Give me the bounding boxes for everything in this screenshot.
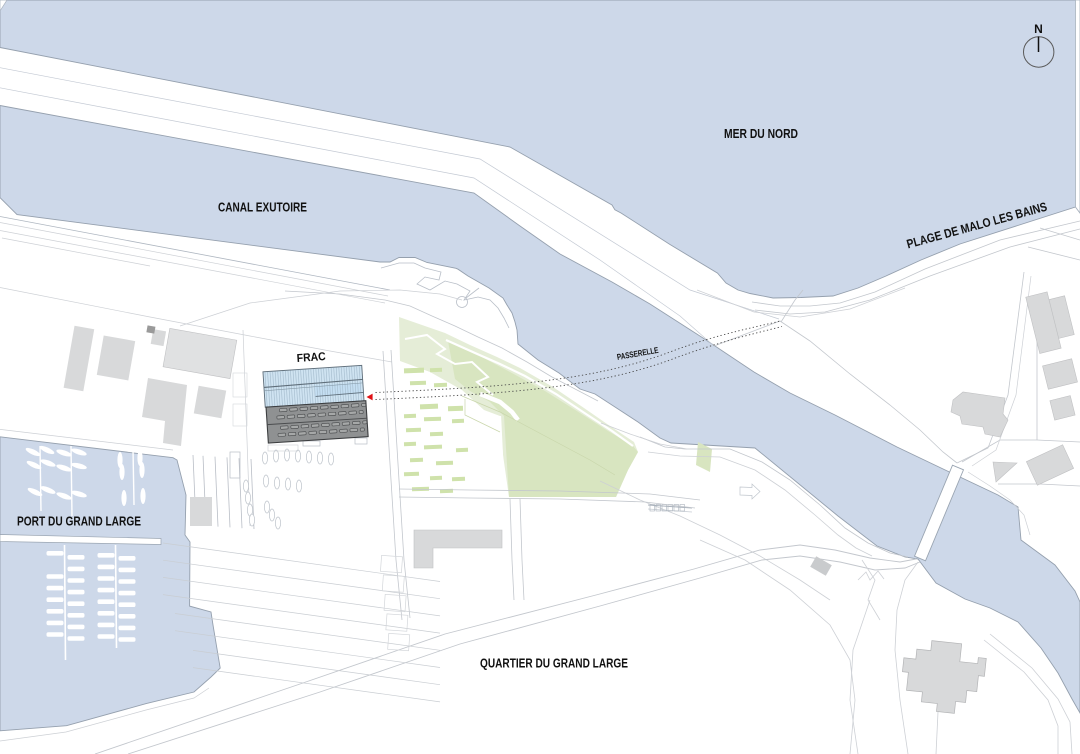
svg-text:CANAL EXUTOIRE: CANAL EXUTOIRE	[218, 200, 307, 215]
svg-text:MER DU NORD: MER DU NORD	[724, 126, 798, 141]
svg-text:QUARTIER DU GRAND LARGE: QUARTIER DU GRAND LARGE	[480, 656, 628, 671]
svg-text:FRAC: FRAC	[296, 351, 326, 365]
svg-text:N: N	[1034, 22, 1043, 36]
svg-text:PORT DU GRAND LARGE: PORT DU GRAND LARGE	[17, 514, 141, 529]
